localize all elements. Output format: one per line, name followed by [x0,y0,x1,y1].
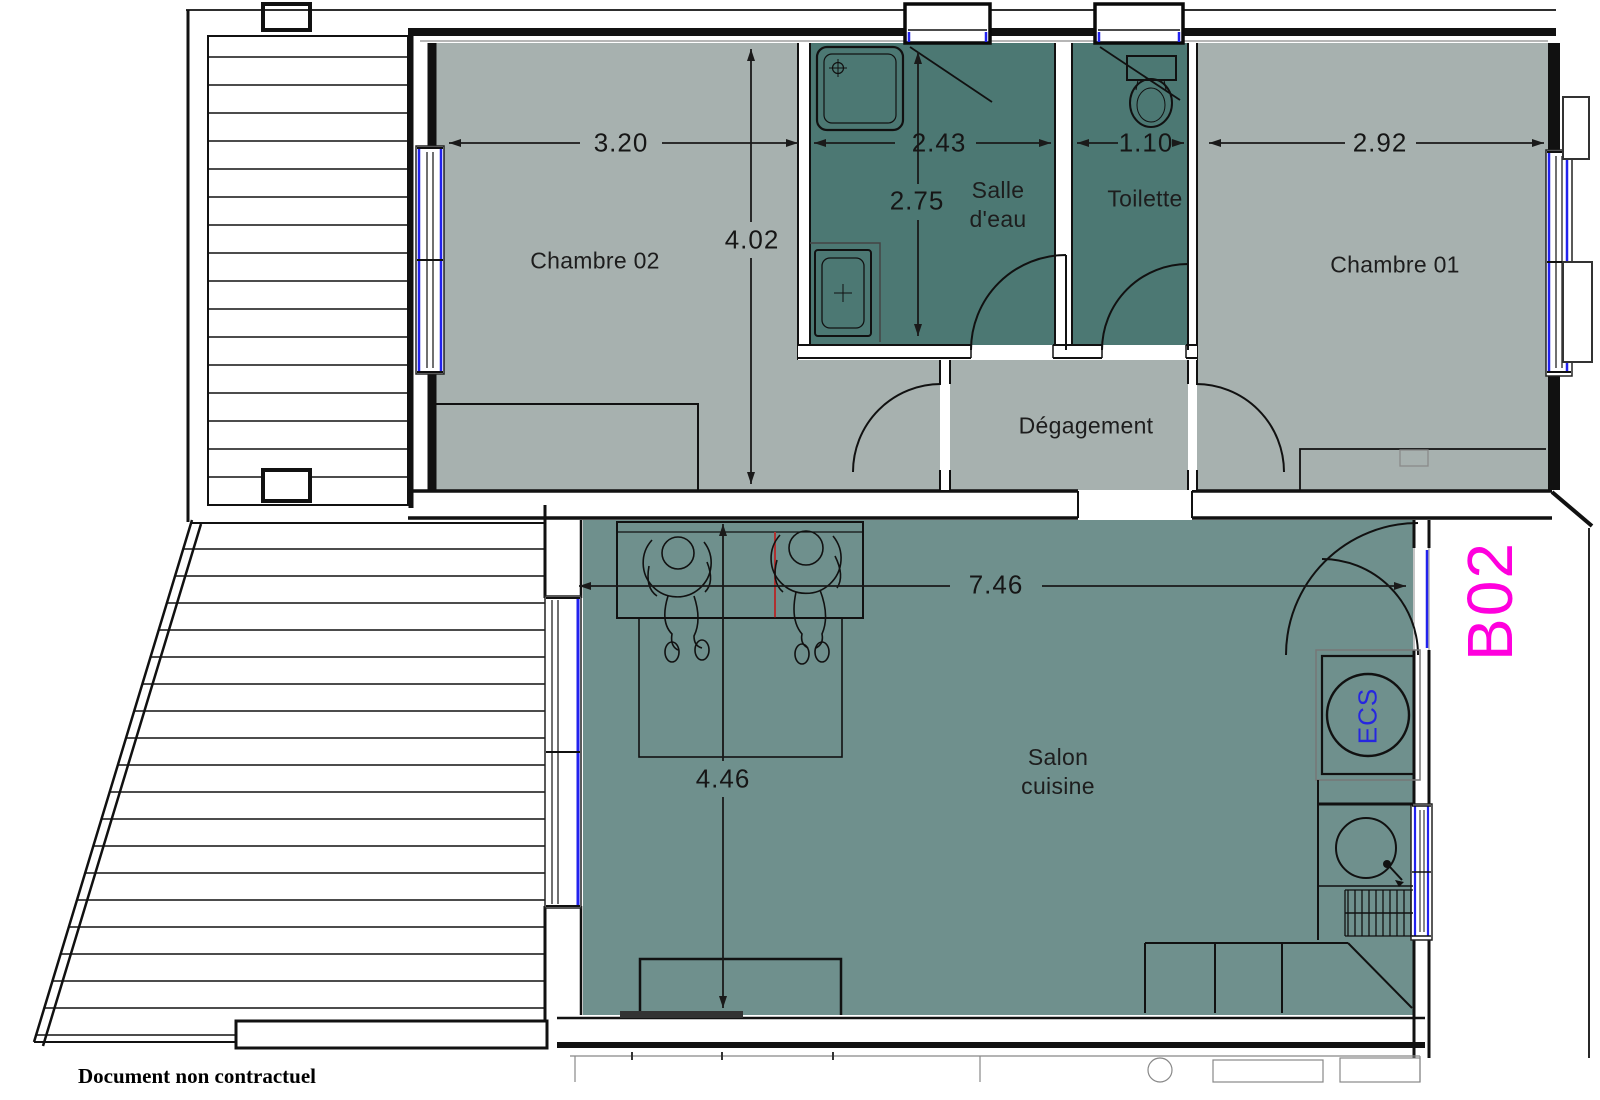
unit-label-b02: B02 [1453,541,1527,661]
water-heater-label: ECS [1353,688,1384,744]
dim-salon-width: 7.46 [969,570,1024,601]
dim-chambre02-width: 3.20 [594,128,649,159]
plan-linework [0,0,1600,1100]
window [1411,804,1432,940]
terrace-step [236,1021,547,1048]
floor-plan: Chambre 02 Salle d'eau Toilette Chambre … [0,0,1600,1100]
dim-chambre01-width: 2.92 [1353,128,1408,159]
dim-upper-rooms-depth: 4.02 [725,225,780,256]
shutter-box [1563,262,1592,362]
shutter-box [1563,97,1589,159]
dim-salon-depth: 4.46 [696,764,751,795]
room-label-salle-deau: Salle d'eau [969,176,1026,234]
room-label-chambre01: Chambre 01 [1330,251,1460,280]
room-label-toilette: Toilette [1107,185,1182,214]
room-label-salon-cuisine: Salon cuisine [1021,743,1095,801]
lower-unit-partial [570,1052,1420,1082]
room-label-line: cuisine [1021,772,1095,801]
dim-salle-deau-width: 2.43 [912,128,967,159]
lower-terrace [34,520,547,1048]
window [545,596,581,908]
deck-post [263,470,310,501]
room-label-line: Salle [969,176,1026,205]
room-label-line: Salon [1021,743,1095,772]
footer-note: Document non contractuel [78,1064,316,1089]
dim-toilette-width: 1.10 [1119,128,1174,159]
window [416,146,444,374]
room-label-line: d'eau [969,205,1026,234]
deck-post [263,4,310,30]
dim-salle-deau-depth: 2.75 [890,186,945,217]
upper-deck [188,4,408,522]
room-label-degagement: Dégagement [1019,412,1154,441]
corridor-floor [798,360,940,490]
room-label-chambre02: Chambre 02 [530,247,660,276]
